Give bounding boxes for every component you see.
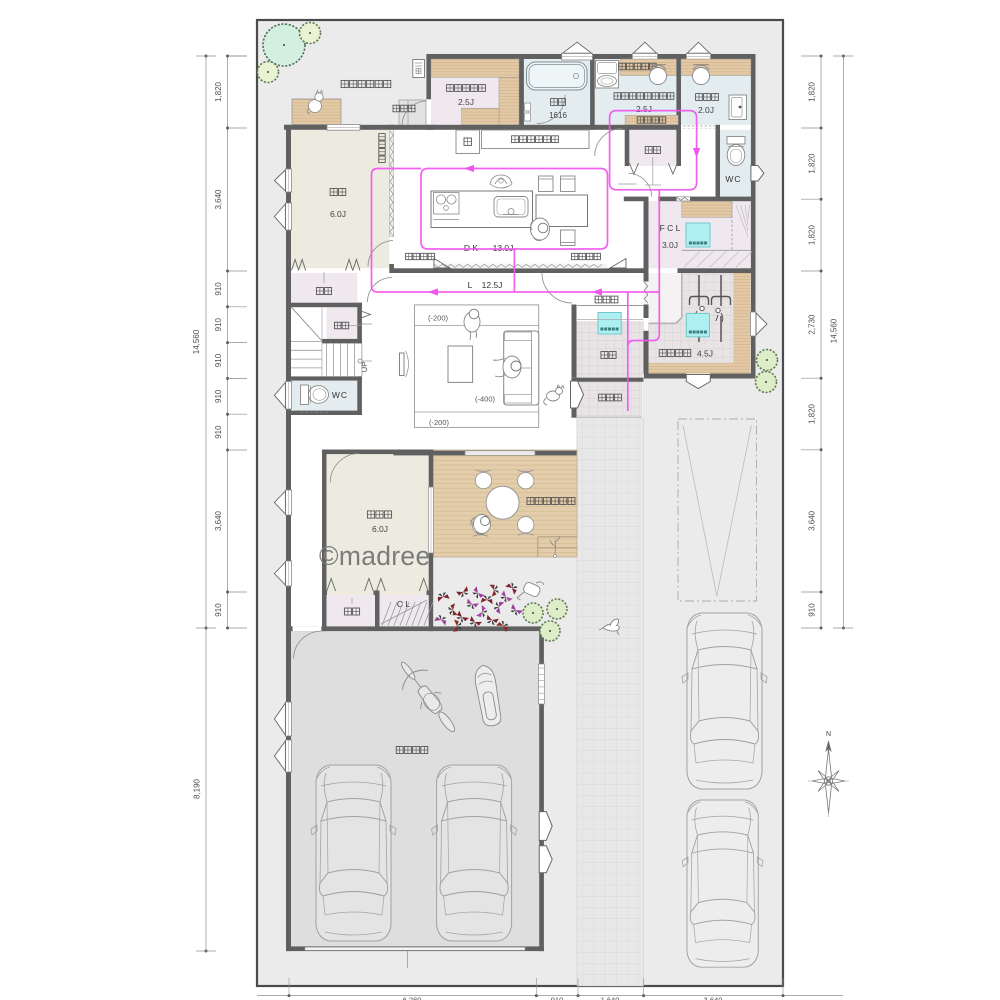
svg-text:13.0J: 13.0J <box>493 243 514 253</box>
svg-text:1616: 1616 <box>549 111 567 120</box>
svg-text:12.5J: 12.5J <box>482 280 503 290</box>
svg-text:3.0J: 3.0J <box>662 240 678 250</box>
svg-text:1,640: 1,640 <box>601 996 620 1000</box>
svg-text:6.0J: 6.0J <box>372 524 388 534</box>
svg-text:910: 910 <box>808 603 817 617</box>
svg-text:3,640: 3,640 <box>214 189 223 210</box>
svg-text:2,730: 2,730 <box>808 314 817 335</box>
svg-text:L: L <box>468 280 473 290</box>
svg-text:©madree: ©madree <box>319 541 430 571</box>
svg-text:910: 910 <box>214 282 223 296</box>
svg-text:6.0J: 6.0J <box>330 209 346 219</box>
svg-text:1,820: 1,820 <box>808 225 817 246</box>
svg-text:6,280: 6,280 <box>403 996 422 1000</box>
svg-text:910: 910 <box>214 317 223 331</box>
svg-text:1,820: 1,820 <box>808 403 817 424</box>
svg-text:8,190: 8,190 <box>193 778 202 799</box>
svg-text:2.0J: 2.0J <box>698 105 714 115</box>
svg-text:1,820: 1,820 <box>808 81 817 102</box>
svg-text:(-400): (-400) <box>475 395 496 404</box>
svg-text:3,640: 3,640 <box>704 996 723 1000</box>
svg-text:1,820: 1,820 <box>214 81 223 102</box>
svg-text:1,820: 1,820 <box>808 153 817 174</box>
svg-text:UP: UP <box>360 362 369 372</box>
svg-text:3,640: 3,640 <box>808 510 817 531</box>
svg-text:910: 910 <box>214 353 223 367</box>
svg-text:(-200): (-200) <box>429 418 450 427</box>
svg-text:(-200): (-200) <box>428 314 449 323</box>
svg-text:N: N <box>826 731 831 738</box>
svg-text:14,560: 14,560 <box>830 318 839 343</box>
svg-text:910: 910 <box>214 389 223 403</box>
svg-text:3,640: 3,640 <box>214 510 223 531</box>
svg-text:F C L: F C L <box>660 223 681 233</box>
svg-text:910: 910 <box>214 603 223 617</box>
svg-text:D K: D K <box>464 243 479 253</box>
svg-text:WC: WC <box>332 390 348 400</box>
svg-text:4.5J: 4.5J <box>697 349 713 359</box>
svg-text:WC: WC <box>725 174 741 184</box>
svg-text:2.5J: 2.5J <box>636 104 652 114</box>
svg-text:910: 910 <box>214 425 223 439</box>
svg-text:910: 910 <box>551 996 564 1000</box>
svg-text:14,560: 14,560 <box>192 329 201 354</box>
svg-text:2.5J: 2.5J <box>458 97 474 107</box>
